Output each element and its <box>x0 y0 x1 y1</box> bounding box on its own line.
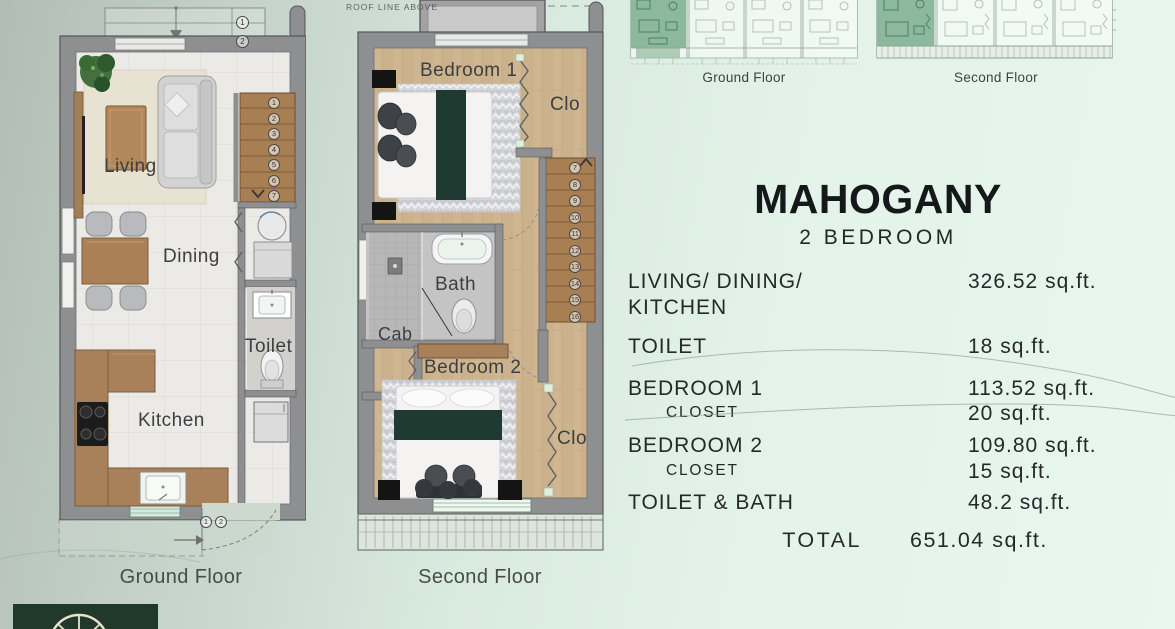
circled-number: 2 <box>236 35 249 48</box>
refrigerator <box>254 402 288 442</box>
row-value: 48.2 sq.ft. <box>968 490 1128 516</box>
toilet-label: Toilet <box>245 336 292 358</box>
row-value: 326.52 sq.ft. <box>968 269 1128 320</box>
total-value: 651.04 sq.ft. <box>910 528 1048 553</box>
kitchen-sink <box>140 472 186 504</box>
circled-number: 15 <box>569 294 581 306</box>
circled-number: 5 <box>268 159 280 171</box>
site-thumb-second-drawing <box>876 0 1116 70</box>
kitchen-label: Kitchen <box>138 410 205 432</box>
closet2-label: Clo <box>557 428 587 450</box>
row-label: TOILET & BATH <box>628 490 968 516</box>
staircase <box>236 93 295 202</box>
toilet-2 <box>452 299 476 333</box>
second-floor-caption: Second Floor <box>352 566 608 589</box>
site-thumb-ground-drawing <box>630 0 858 66</box>
bed-2 <box>378 386 522 500</box>
circled-number: 7 <box>569 162 581 174</box>
ground-floor-caption: Ground Floor <box>56 566 306 589</box>
circled-number: 3 <box>268 128 280 140</box>
site-thumb-ground-caption: Ground Floor <box>630 70 858 85</box>
row-value: 113.52 sq.ft. <box>968 376 1128 402</box>
circled-number: 14 <box>569 278 581 290</box>
unit-info-panel: MAHOGANY 2 BEDROOM LIVING/ DINING/ KITCH… <box>628 176 1128 553</box>
sofa <box>158 76 216 188</box>
highlighted-unit <box>877 0 934 46</box>
circled-number: 1 <box>200 516 212 528</box>
washer <box>254 242 292 278</box>
table-row: TOILET 18 sq.ft. <box>628 334 1128 360</box>
total-row: TOTAL 651.04 sq.ft. <box>628 528 1128 553</box>
cooktop <box>77 402 108 446</box>
canopy-markers: 12 <box>236 16 249 48</box>
row-label: TOILET <box>628 334 968 360</box>
circled-number: 16 <box>569 311 581 323</box>
area-table: LIVING/ DINING/ KITCHEN 326.52 sq.ft. TO… <box>628 269 1128 553</box>
brochure-canvas: Living Dining Toilet Kitchen 12 1234567 … <box>0 0 1175 629</box>
balcony-strip <box>358 514 603 550</box>
table-row: TOILET & BATH 48.2 sq.ft. <box>628 490 1128 516</box>
circled-number: 7 <box>268 190 280 202</box>
bedroom1-label: Bedroom 1 <box>420 60 517 82</box>
total-label: TOTAL <box>628 528 862 553</box>
circled-number: 2 <box>215 516 227 528</box>
circled-number: 10 <box>569 212 581 224</box>
ground-stair-numbers: 1234567 <box>268 97 280 202</box>
row-value: 109.80 sq.ft. <box>968 433 1128 459</box>
cab-label: Cab <box>378 324 413 345</box>
circled-number: 8 <box>569 179 581 191</box>
circled-number: 11 <box>569 228 581 240</box>
closet1-label: Clo <box>550 94 580 116</box>
table-row: LIVING/ DINING/ KITCHEN 326.52 sq.ft. <box>628 269 1128 320</box>
second-floor-plan: ROOF LINE ABOVE Bedroom 1 Clo Bath Cab B… <box>352 0 608 560</box>
party-wall-cap <box>589 2 603 36</box>
dining-label: Dining <box>163 246 220 268</box>
wheel-emblem-icon <box>13 604 158 629</box>
dresser <box>418 344 508 358</box>
bath-label: Bath <box>435 274 476 296</box>
roof-line-note: ROOF LINE ABOVE <box>346 2 438 12</box>
circled-number: 1 <box>236 16 249 29</box>
ground-floor-drawing <box>56 0 306 560</box>
ground-floor-plan: Living Dining Toilet Kitchen 12 1234567 … <box>56 0 306 560</box>
row-sublabel: CLOSET <box>628 401 968 427</box>
circled-number: 1 <box>268 97 280 109</box>
dimension-ticks <box>1113 10 1116 30</box>
entry-markers: 12 <box>200 516 227 528</box>
row-label: LIVING/ DINING/ <box>628 269 968 295</box>
row-value: 18 sq.ft. <box>968 334 1128 360</box>
table-subrow: CLOSET 20 sq.ft. <box>628 401 1128 427</box>
model-type: 2 BEDROOM <box>628 226 1128 250</box>
bedroom2-label: Bedroom 2 <box>424 357 521 379</box>
circled-number: 2 <box>268 113 280 125</box>
model-name: MAHOGANY <box>628 176 1128 223</box>
toilet-sink <box>253 290 291 318</box>
row-subvalue: 15 sq.ft. <box>968 459 1128 485</box>
living-label: Living <box>104 156 157 178</box>
circled-number: 9 <box>569 195 581 207</box>
bed-1 <box>372 70 492 220</box>
table-row: BEDROOM 1 113.52 sq.ft. <box>628 376 1128 402</box>
staircase <box>539 158 595 330</box>
developer-logo <box>13 604 158 629</box>
bathtub <box>432 232 492 264</box>
entry-porch <box>59 518 276 556</box>
row-label: BEDROOM 2 <box>628 433 968 459</box>
circled-number: 12 <box>569 245 581 257</box>
party-wall-cap <box>290 6 305 40</box>
row-label: BEDROOM 1 <box>628 376 968 402</box>
circled-number: 6 <box>268 175 280 187</box>
row-sublabel: CLOSET <box>628 459 968 485</box>
circled-number: 4 <box>268 144 280 156</box>
table-subrow: CLOSET 15 sq.ft. <box>628 459 1128 485</box>
row-subvalue: 20 sq.ft. <box>968 401 1128 427</box>
second-stair-numbers: 78910111213141516 <box>569 162 581 323</box>
table-row: BEDROOM 2 109.80 sq.ft. <box>628 433 1128 459</box>
circled-number: 13 <box>569 261 581 273</box>
site-thumb-ground: Ground Floor <box>630 0 858 71</box>
row-label: KITCHEN <box>628 295 968 321</box>
site-thumb-second: Second Floor <box>876 0 1116 75</box>
tv-console <box>74 92 85 218</box>
site-thumb-second-caption: Second Floor <box>876 70 1116 85</box>
